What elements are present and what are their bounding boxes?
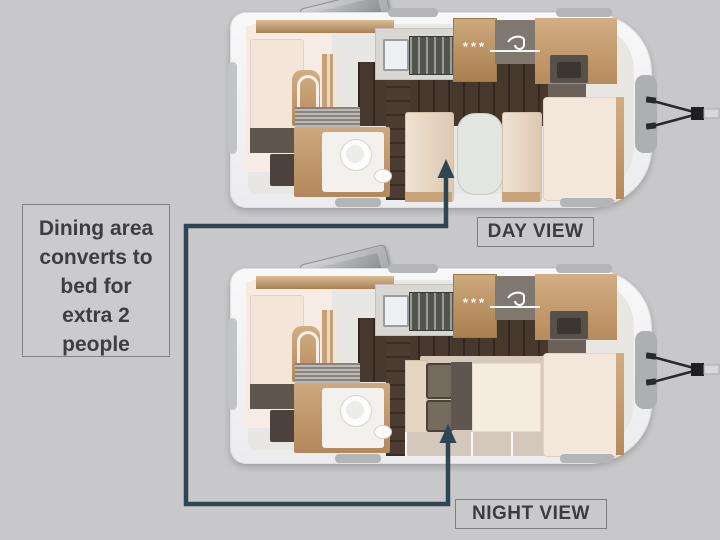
tv-unit bbox=[550, 55, 588, 83]
night-view-label: NIGHT VIEW bbox=[455, 499, 607, 529]
side-step-stub bbox=[335, 198, 381, 207]
bathroom-sink bbox=[374, 169, 392, 183]
side-step-stub bbox=[560, 198, 614, 207]
day-caravan-floorplan: *** bbox=[228, 6, 720, 220]
toilet bbox=[340, 395, 372, 427]
bathroom bbox=[294, 127, 390, 197]
stove-grate bbox=[409, 292, 456, 331]
window-blinds bbox=[295, 107, 360, 129]
bathroom-sink bbox=[374, 425, 392, 439]
bed-pillow bbox=[426, 363, 453, 399]
bed-pillow bbox=[426, 400, 453, 432]
rear-bumper-handle bbox=[228, 62, 237, 154]
annotation-box: Dining area converts to bed for extra 2 … bbox=[22, 204, 170, 357]
bench-base-left bbox=[405, 192, 452, 202]
roof-rail-stub bbox=[388, 8, 438, 17]
side-step-stub bbox=[335, 454, 381, 463]
kitchen-sink bbox=[383, 39, 409, 71]
tow-hitch bbox=[646, 92, 720, 136]
kitchen-sink bbox=[383, 295, 409, 327]
caravan-layout-infographic: *** bbox=[0, 0, 720, 540]
window-blinds bbox=[295, 363, 360, 385]
front-bed-trim bbox=[616, 353, 624, 455]
hook-icon bbox=[506, 34, 534, 56]
overhead-locker-rear bbox=[256, 20, 394, 33]
rear-bumper-handle bbox=[228, 318, 237, 410]
night-caravan-floorplan: *** bbox=[228, 262, 720, 476]
tow-hitch bbox=[646, 348, 720, 392]
annotation-line: bed for bbox=[23, 272, 169, 301]
toilet bbox=[340, 139, 372, 171]
annotation-line: Dining area bbox=[23, 214, 169, 243]
under-bed-storage bbox=[405, 432, 545, 456]
rear-bed-foot-cushion bbox=[250, 384, 300, 409]
converted-bed-mattress bbox=[472, 363, 541, 432]
bathroom bbox=[294, 383, 390, 453]
roof-rail-stub bbox=[556, 8, 612, 17]
dinette-bench-right bbox=[502, 112, 542, 202]
front-side-bed bbox=[543, 97, 619, 201]
roof-rail-stub bbox=[388, 264, 438, 273]
dinette-bench-left bbox=[405, 112, 454, 202]
kitchen-counter bbox=[375, 284, 459, 336]
tv-unit bbox=[550, 311, 588, 339]
bed-runner bbox=[451, 362, 472, 430]
annotation-line: extra 2 bbox=[23, 301, 169, 330]
front-side-bed bbox=[543, 353, 619, 457]
stove-grate bbox=[409, 36, 456, 75]
side-step-stub bbox=[560, 454, 614, 463]
bench-edge bbox=[405, 360, 427, 434]
roof-rail-stub bbox=[556, 264, 612, 273]
bench-base-right bbox=[502, 192, 540, 202]
dinette-table bbox=[457, 113, 503, 195]
annotation-line: converts to bbox=[23, 243, 169, 272]
front-bed-trim bbox=[616, 97, 624, 199]
kitchen-counter bbox=[375, 28, 459, 80]
hook-icon bbox=[506, 290, 534, 312]
overhead-locker-rear bbox=[256, 276, 394, 289]
rear-bed-foot-cushion bbox=[250, 128, 300, 153]
annotation-line: people bbox=[23, 330, 169, 359]
day-view-label: DAY VIEW bbox=[477, 217, 594, 247]
